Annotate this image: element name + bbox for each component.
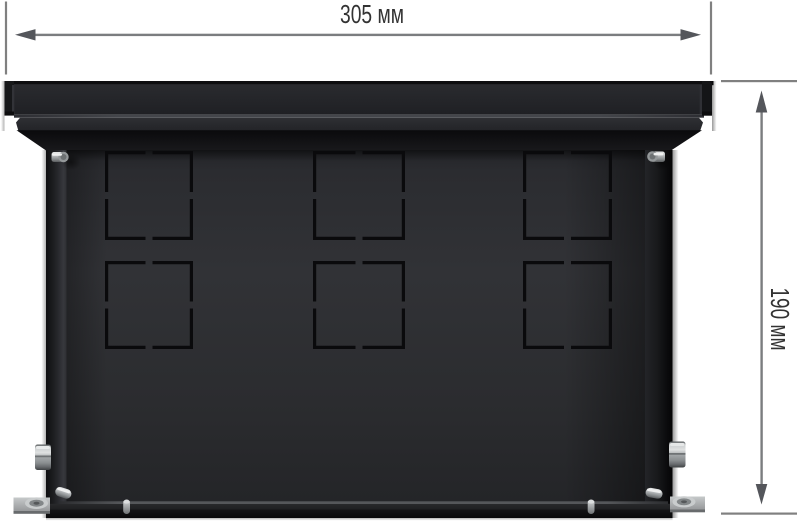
svg-text:190 мм: 190 мм xyxy=(765,288,793,351)
svg-text:305 мм: 305 мм xyxy=(340,1,404,29)
